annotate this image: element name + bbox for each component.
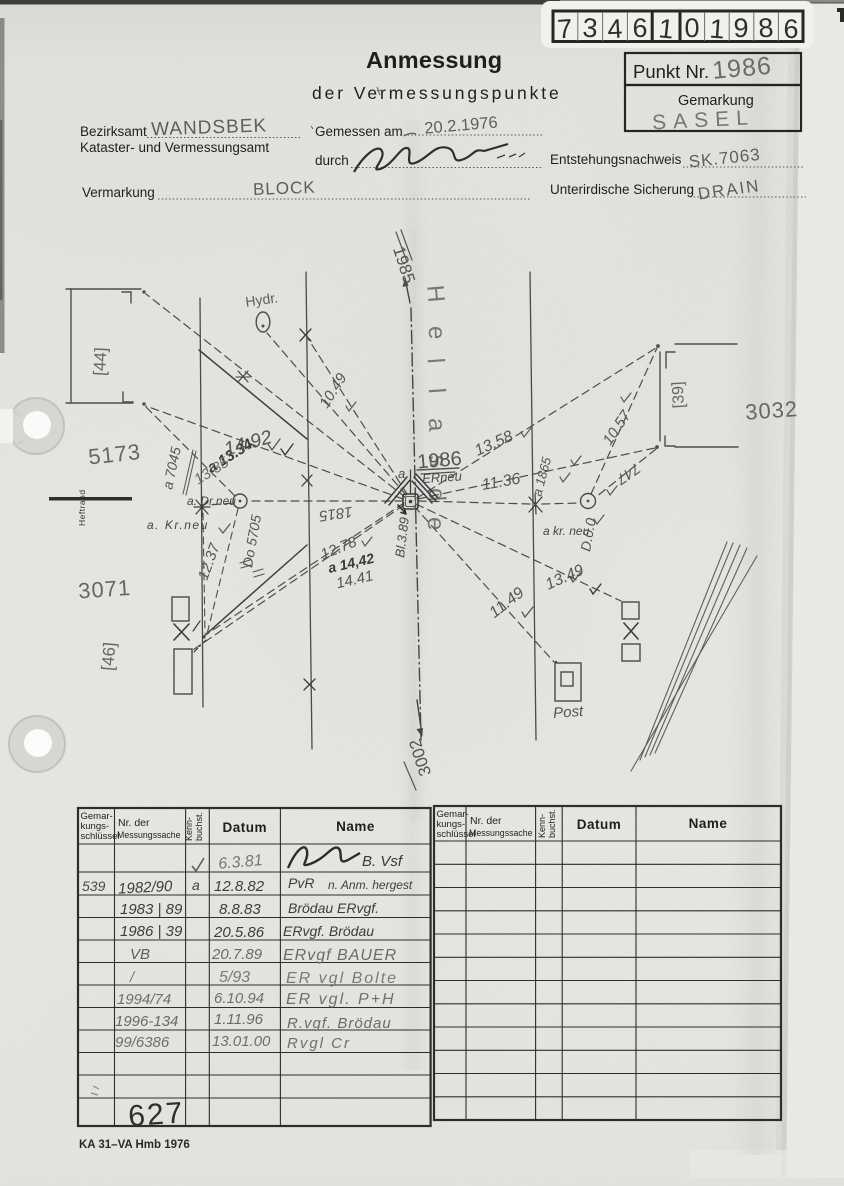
svg-text:13.01.00: 13.01.00	[212, 1033, 271, 1050]
svg-text:1986: 1986	[711, 52, 773, 85]
svg-text:ER vgl. P+H: ER vgl. P+H	[286, 991, 396, 1008]
svg-text:R.vgf. Brödau: R.vgf. Brödau	[287, 1015, 392, 1032]
svg-text:Kenn-: Kenn-	[184, 817, 194, 841]
svg-text:Kenn-: Kenn-	[537, 814, 547, 838]
svg-text:Brödau ERvgf.: Brödau ERvgf.	[288, 900, 379, 916]
svg-text:ERneu: ERneu	[422, 468, 463, 486]
svg-text:der Vermessungspunkte: der Vermessungspunkte	[312, 83, 562, 103]
svg-text:8: 8	[757, 13, 774, 44]
svg-text:a: a	[398, 466, 405, 481]
svg-text:schlüssel: schlüssel	[81, 831, 120, 842]
svg-text:n. Anm. hergest: n. Anm. hergest	[328, 878, 413, 892]
svg-text:1986 | 39: 1986 | 39	[120, 923, 183, 940]
svg-text:[46]: [46]	[98, 641, 119, 671]
svg-text:Kataster- und Vermessungsamt: Kataster- und Vermessungsamt	[80, 140, 269, 155]
svg-text:BLOCK: BLOCK	[253, 178, 316, 199]
svg-text:WANDSBEK: WANDSBEK	[151, 115, 268, 140]
svg-text:0: 0	[684, 13, 699, 43]
svg-text:1996-134: 1996-134	[115, 1013, 178, 1030]
svg-text:Unterirdische Sicherung: Unterirdische Sicherung	[550, 182, 694, 197]
svg-text:6: 6	[783, 14, 798, 44]
svg-text:20.5.86: 20.5.86	[213, 924, 265, 941]
svg-text:1994/74: 1994/74	[117, 991, 171, 1008]
svg-text:e: e	[423, 326, 450, 340]
svg-text:627: 627	[127, 1096, 185, 1133]
svg-text:Nr. der: Nr. der	[470, 815, 502, 827]
svg-text:1: 1	[657, 13, 675, 44]
svg-text:99/6386: 99/6386	[115, 1034, 170, 1051]
svg-text:1: 1	[709, 14, 726, 45]
svg-text:Gemessen am: Gemessen am	[315, 124, 403, 139]
svg-text:[39]: [39]	[670, 381, 688, 409]
svg-text:539: 539	[82, 878, 106, 894]
svg-text:Messungssache: Messungssache	[469, 828, 533, 838]
svg-text:5/93: 5/93	[219, 969, 250, 986]
svg-text:durch: durch	[315, 153, 349, 168]
svg-text:3032: 3032	[744, 396, 799, 425]
svg-text:PvR: PvR	[288, 875, 314, 891]
svg-text:Name: Name	[689, 816, 728, 831]
svg-text:3: 3	[582, 13, 599, 44]
svg-text:3071: 3071	[77, 575, 132, 604]
svg-text:9: 9	[733, 13, 748, 43]
svg-text:6: 6	[632, 13, 647, 43]
svg-text:8.8.83: 8.8.83	[219, 901, 261, 918]
svg-text:Vermarkung: Vermarkung	[82, 185, 155, 200]
svg-text:a. Kr.neu: a. Kr.neu	[147, 518, 209, 532]
svg-text:ERvgf. Brödau: ERvgf. Brödau	[283, 923, 374, 939]
svg-text:H: H	[421, 284, 449, 304]
svg-text:ERvgf BAUER: ERvgf BAUER	[283, 947, 397, 964]
svg-text:B. Vsf: B. Vsf	[362, 853, 404, 870]
svg-text:Name: Name	[336, 819, 375, 834]
svg-text:Anmessung: Anmessung	[366, 47, 502, 73]
svg-text:a: a	[423, 418, 450, 433]
svg-text:7: 7	[556, 14, 573, 45]
svg-text:a: a	[192, 877, 200, 893]
svg-text:a. Dr.neu: a. Dr.neu	[187, 494, 236, 508]
svg-text:1982/90: 1982/90	[118, 878, 174, 898]
svg-text:ER vgl Bolte: ER vgl Bolte	[286, 970, 398, 987]
svg-text:6.10.94: 6.10.94	[214, 990, 264, 1007]
svg-text:4: 4	[607, 14, 624, 45]
svg-text:Punkt Nr.: Punkt Nr.	[633, 61, 709, 82]
svg-text:Datum: Datum	[577, 817, 622, 832]
svg-text:buchst.: buchst.	[194, 812, 204, 841]
svg-text:KA 31–VA Hmb 1976: KA 31–VA Hmb 1976	[79, 1139, 190, 1151]
svg-text:Nr. der: Nr. der	[118, 817, 150, 829]
svg-text:12.8.82: 12.8.82	[214, 878, 265, 895]
svg-text:20.7.89: 20.7.89	[211, 946, 263, 963]
svg-text:Post: Post	[553, 703, 585, 722]
svg-text:Bezirksamt: Bezirksamt	[80, 124, 147, 139]
svg-text:Messungssache: Messungssache	[117, 830, 181, 840]
svg-text:VB: VB	[130, 946, 150, 963]
svg-text:Rvgl Cr: Rvgl Cr	[287, 1035, 351, 1052]
svg-text:Entstehungsnachweis: Entstehungsnachweis	[550, 152, 682, 167]
svg-text:Datum: Datum	[223, 820, 268, 835]
svg-text:1983 | 89: 1983 | 89	[120, 901, 183, 918]
svg-text:1.11.96: 1.11.96	[214, 1011, 264, 1028]
svg-text:Heftrand: Heftrand	[77, 489, 87, 526]
svg-text:[44]: [44]	[90, 347, 110, 376]
svg-text:buchst.: buchst.	[547, 809, 557, 838]
